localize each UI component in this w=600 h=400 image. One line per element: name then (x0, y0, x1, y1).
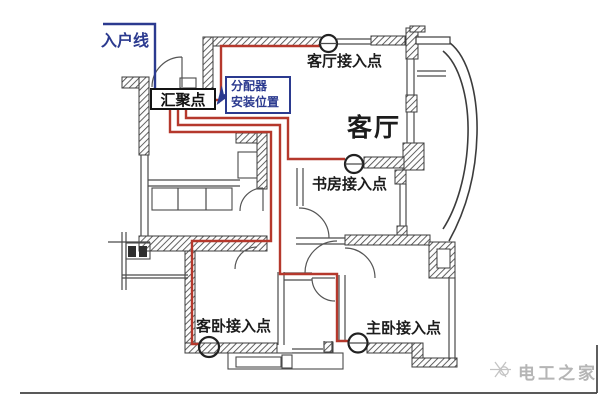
kitchen-counter (152, 152, 257, 210)
splitter-location-line2: 安装位置 (231, 95, 289, 111)
study-access-point-label: 书房接入点 (312, 176, 387, 193)
splitter-location-line1: 分配器 (231, 79, 289, 95)
hub-point-label: 汇聚点 (160, 89, 205, 110)
hub-point-box: 汇聚点 (150, 88, 216, 110)
entry-line-label: 入户线 (101, 32, 149, 50)
watermark-logo-icon (490, 362, 511, 377)
master-bedroom-access-point-label: 主卧接入点 (366, 320, 441, 337)
floor-plan-drawing (0, 0, 600, 400)
balcony-curve (416, 37, 477, 241)
watermark-text: 电工之家 (518, 359, 598, 384)
bottom-fixtures (228, 353, 343, 369)
floor-plan-diagram: 入户线 汇聚点 分配器 安装位置 客厅接入点 客厅 书房接入点 客卧接入点 主卧… (0, 0, 600, 400)
living-room-label: 客厅 (347, 114, 401, 142)
guest-bedroom-access-point-label: 客卧接入点 (196, 318, 271, 335)
splitter-location-box: 分配器 安装位置 (225, 76, 291, 114)
living-room-access-point-label: 客厅接入点 (307, 53, 382, 70)
